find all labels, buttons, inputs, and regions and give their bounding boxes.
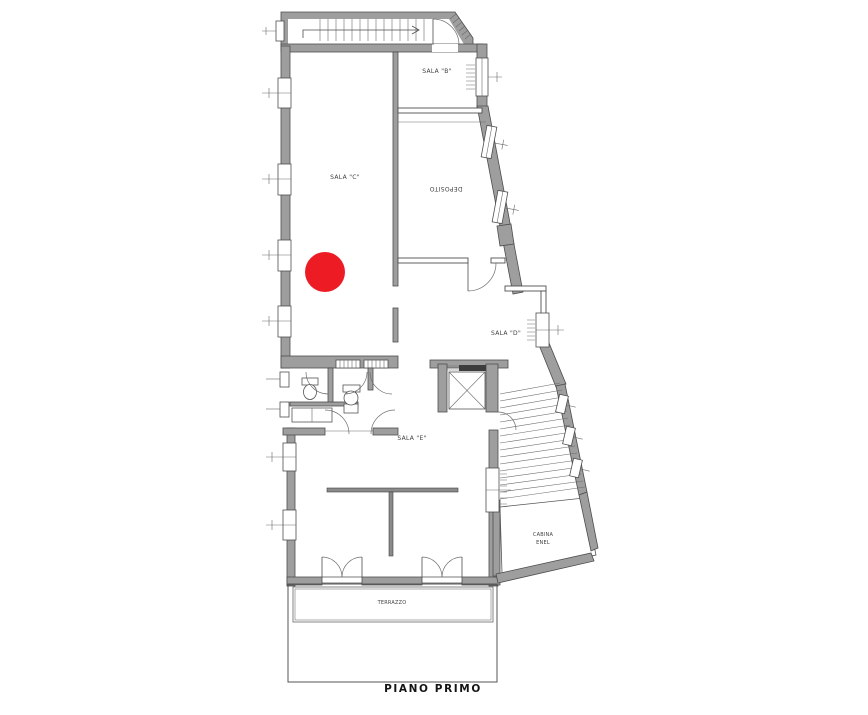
sala-d-window	[527, 313, 564, 347]
floor-plan-canvas: SALA "B" SALA "C" DEPOSITO SALA "D" SALA…	[0, 0, 868, 715]
room-label-terrazzo: TERRAZZO	[377, 600, 407, 606]
toilet-tank-1	[302, 378, 318, 385]
wc-partition-1	[328, 368, 333, 404]
elevator	[438, 364, 498, 412]
corridor-window-tick	[262, 27, 276, 35]
french-door-1	[322, 557, 362, 583]
elevator-door	[459, 365, 486, 371]
interior-partitions	[393, 52, 546, 342]
bathroom-block	[266, 360, 398, 435]
partition-t-vertical	[389, 492, 393, 556]
room-label-cabina-2: ENEL	[536, 540, 550, 546]
sala-d-step-wall-v	[541, 291, 546, 315]
red-marker[interactable]	[305, 252, 345, 292]
right-staircase	[500, 383, 592, 499]
sala-b-window	[466, 58, 502, 96]
entry-stair-corridor	[262, 12, 473, 46]
terrace	[288, 584, 497, 682]
room-label-sala-e: SALA "E"	[397, 435, 426, 442]
slanted-wall-mid	[539, 343, 566, 387]
slanted-wall-notch	[497, 224, 514, 246]
sala-c-right-wall-upper	[393, 52, 398, 286]
radiator-icon	[527, 320, 535, 340]
terrace-outer	[288, 584, 497, 682]
radiator-icon	[466, 65, 475, 89]
deposito-bottom-partition-2	[491, 258, 505, 263]
sala-b-door-gap	[432, 44, 458, 52]
corridor-floor	[288, 19, 465, 46]
room-label-deposito: DEPOSITO	[429, 185, 462, 192]
partition-t-horizontal	[327, 488, 458, 492]
floor-plan-drawing: SALA "B" SALA "C" DEPOSITO SALA "D" SALA…	[0, 0, 868, 715]
toilet-bowl-1	[304, 385, 317, 400]
room-label-cabina-1: CABINA	[533, 532, 554, 538]
deposito-bottom-partition	[398, 258, 468, 263]
french-door-2	[422, 557, 462, 583]
deposito-top-partition	[398, 108, 482, 113]
sala-e-room	[266, 443, 511, 583]
corridor-left-window	[276, 21, 284, 41]
sala-c-right-wall-lower	[393, 308, 398, 342]
room-label-sala-b: SALA "B"	[422, 68, 452, 75]
plan-title: PIANO PRIMO	[384, 683, 482, 695]
sala-d-step-wall-h	[505, 286, 546, 291]
wc-partition-2	[368, 368, 373, 390]
radiator-icon	[500, 474, 507, 504]
room-label-sala-c: SALA "C"	[330, 174, 360, 181]
room-label-sala-d: SALA "D"	[491, 330, 521, 337]
